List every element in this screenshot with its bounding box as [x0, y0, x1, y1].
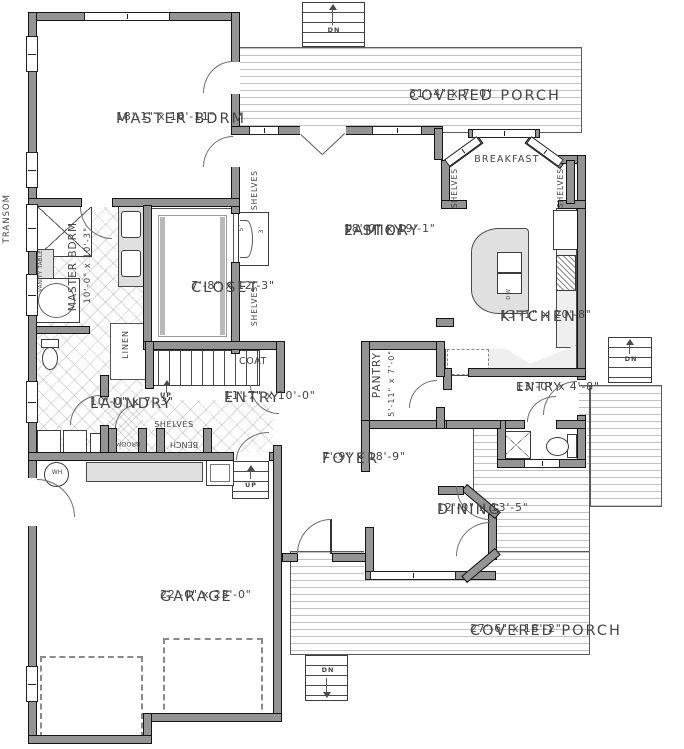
right-side-deck: [590, 385, 662, 507]
wall: [443, 420, 501, 429]
room-dims: 13'-1" x 20'-8": [500, 308, 592, 322]
stairs-main-arrow-head: [163, 380, 171, 386]
door-arc: [297, 519, 331, 554]
label-dn-bottom-stairs: DN: [322, 666, 335, 674]
room-dims: 13'-0" x 4'-8": [516, 380, 600, 394]
door-arc: [203, 61, 233, 93]
wall: [145, 341, 285, 350]
stairs-right-arrow-head: [626, 339, 634, 345]
room-dims: 31'-4" x 7'-0": [409, 87, 493, 101]
wall: [436, 341, 445, 377]
window-dining: [370, 571, 456, 580]
room-dims: 11'-7" x 10'-0": [224, 389, 316, 403]
wall: [361, 341, 445, 350]
wall: [434, 128, 443, 160]
label-broom: BROOM: [116, 440, 141, 448]
label-niche-dim: 3': [258, 226, 265, 233]
wall: [28, 12, 37, 744]
mud-sink-inner: [210, 464, 230, 482]
wall: [556, 420, 586, 429]
window: [26, 666, 38, 702]
french-door-leaf: [300, 134, 323, 155]
label-shelves: SHELVES: [250, 286, 259, 326]
wall: [273, 445, 282, 722]
garage-shelf-strip: [86, 462, 203, 482]
room-dims: 22'-0" x 23'-0": [160, 588, 252, 602]
toilet-bowl-master: [42, 347, 58, 370]
wall: [282, 553, 298, 562]
wall: [436, 407, 445, 429]
wall: [558, 459, 586, 468]
stairs-top-arrow-head: [329, 4, 337, 10]
label-dn-right-stairs: DN: [625, 355, 638, 363]
wall: [468, 368, 586, 377]
window: [26, 152, 38, 188]
toilet-bowl-powder: [546, 437, 569, 456]
wall: [36, 326, 90, 334]
label-vanity-table: VANITY TABLE: [38, 250, 44, 292]
window: [372, 126, 422, 135]
label-shelves: SHELVES: [556, 168, 565, 208]
wall: [150, 713, 282, 722]
room-dims-master-bath: 10'-0" x 10'-3": [83, 227, 93, 304]
wall: [497, 459, 527, 468]
vanity-sink-2: [121, 250, 141, 277]
label-linen: LINEN: [121, 330, 130, 359]
stairs-bottom-arrow-head: [323, 692, 331, 698]
door-arc: [37, 479, 75, 517]
garage-bay-outline-left: [40, 656, 143, 738]
window: [26, 381, 38, 423]
room-dims: 7'-8" x 12'-3": [191, 279, 275, 293]
closet-rod-left: [160, 217, 165, 335]
wall: [577, 155, 586, 380]
wall: [566, 160, 575, 204]
label-dishwasher: DW: [506, 288, 512, 300]
room-label-master-bath: MASTER BDRM: [67, 222, 79, 311]
island-sink-1: [497, 252, 522, 273]
window: [26, 274, 38, 316]
room-dims: 12'-0" x 13'-5": [437, 501, 529, 515]
closet-shelving-inner: [158, 215, 227, 337]
label-up-main-stairs: UP: [160, 391, 172, 399]
room-label-breakfast: BREAKFAST: [474, 154, 540, 166]
label-bench: BENCH: [170, 439, 198, 449]
label-water-heater: WH: [52, 469, 62, 477]
wall: [361, 420, 447, 429]
wall: [28, 452, 234, 461]
label-dn-top-stairs: DN: [328, 26, 341, 34]
room-name: BREAKFAST: [474, 154, 540, 166]
vanity-sink-1: [121, 211, 141, 238]
door-opening: [82, 198, 112, 207]
room-dims: 27'-6" x 18'-2": [470, 622, 562, 636]
range: [556, 255, 576, 291]
label-shelves: SHELVES: [250, 170, 259, 210]
french-door-leaf: [322, 133, 345, 154]
room-dims: 7'-9" x 18'-9": [322, 450, 406, 464]
window-powder: [524, 459, 560, 468]
wall: [112, 198, 240, 207]
wall: [361, 341, 370, 429]
wall: [145, 341, 154, 389]
label-up-garage-steps: UP: [245, 481, 257, 489]
door-arc: [203, 136, 233, 167]
wall: [100, 375, 109, 397]
closet-rod-right: [220, 217, 225, 335]
french-door-opening: [300, 126, 346, 135]
window: [249, 126, 279, 135]
refrigerator: [553, 210, 578, 250]
garage-steps-arrow-head: [247, 465, 255, 471]
room-label-pantry: PANTRY: [371, 352, 383, 398]
floor-plan: MASTER BDRM 18'-1" x 16'-11" COVERED POR…: [0, 0, 684, 749]
wall: [231, 12, 240, 64]
label-niche-dim: 5': [238, 224, 245, 231]
window-transom: [26, 204, 38, 252]
window: [84, 12, 170, 21]
label-coat: COAT: [239, 356, 267, 368]
room-dims-pantry: 5'-11" x 7'-0": [387, 350, 396, 417]
wall: [436, 318, 454, 327]
wall: [28, 735, 152, 744]
room-dims: 18'-0" x 19'-1": [344, 222, 436, 236]
room-dims: 18'-1" x 16'-11": [116, 110, 215, 124]
stairs-top-arrow-line: [332, 9, 333, 25]
stairs-bottom-arrow-line: [326, 678, 327, 692]
wall: [143, 205, 152, 346]
label-transom: TRANSOM: [2, 194, 12, 243]
door-arc: [409, 380, 437, 408]
label-shelves: SHELVES: [450, 168, 459, 208]
label-shelves: SHELVES: [154, 420, 194, 430]
window-breakfast: [472, 129, 536, 138]
door-opening: [28, 478, 37, 526]
garage-bay-outline-right: [163, 638, 263, 719]
window: [26, 36, 38, 72]
